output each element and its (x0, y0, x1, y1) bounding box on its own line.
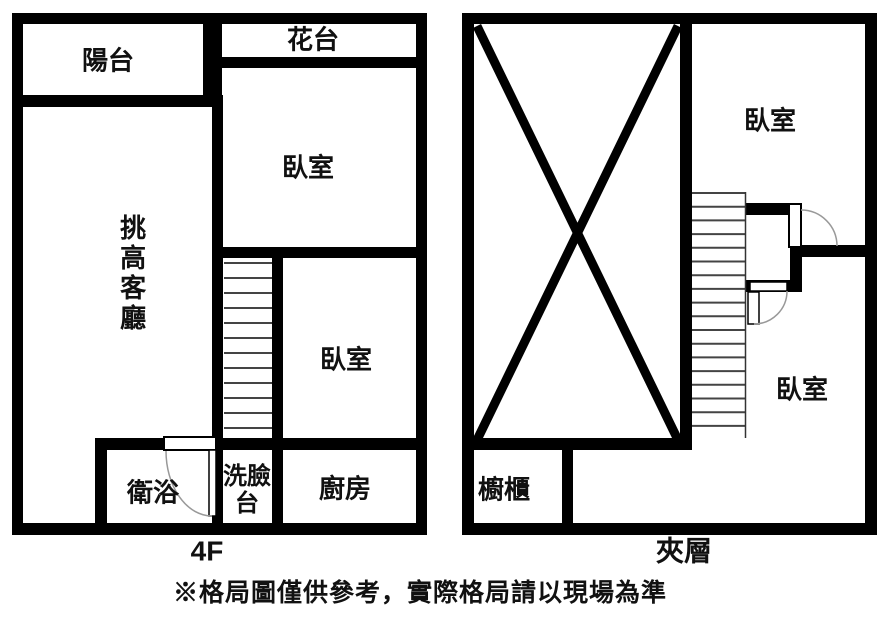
room-label-bedroom-top-mezzanine: 臥室 (744, 107, 796, 134)
room-label-cabinet: 櫥櫃 (478, 476, 530, 503)
stairs-mezzanine (692, 192, 746, 438)
bathroom-door-leaf-closed (164, 437, 216, 450)
stairs-4f (224, 263, 272, 428)
floor-label-mezzanine: 夾層 (656, 536, 712, 565)
mezzanine-bedroom-top-door (789, 204, 837, 247)
room-label-balcony: 陽台 (82, 47, 134, 74)
room-label-bathroom: 衛浴 (127, 479, 179, 506)
room-label-living-room: 挑高客廳 (117, 214, 144, 334)
mezzanine-bedroom-bottom-door (748, 282, 787, 324)
floor-label-4f: 4F (191, 536, 224, 565)
disclaimer-text: ※格局圖僅供參考，實際格局請以現場為準 (173, 580, 667, 606)
floorplan-4f-walls (12, 13, 427, 535)
void-x-mark (477, 26, 678, 440)
bathroom-door-leaf-open (209, 450, 216, 516)
room-label-bedroom-top-4f: 臥室 (282, 154, 334, 181)
floorplan-mezzanine-walls (462, 13, 877, 535)
floor-plan-image: 陽台 花台 臥室 挑高客廳 臥室 衛浴 洗臉台 廚房 4F 臥室 臥室 櫥櫃 夾… (0, 0, 889, 622)
mezzanine-bottom-door-leaf-open (748, 292, 759, 324)
mezzanine-top-door-leaf (789, 204, 801, 247)
room-label-kitchen: 廚房 (319, 475, 371, 502)
mezzanine-bottom-door-leaf-closed (750, 282, 787, 291)
room-label-bedroom-mid-4f: 臥室 (320, 346, 372, 373)
room-label-bedroom-bottom-mezzanine: 臥室 (776, 376, 828, 403)
mezzanine-top-door-swing-arc (801, 210, 837, 246)
room-label-washbasin: 洗臉台 (219, 463, 275, 517)
room-label-flower-bed: 花台 (287, 26, 339, 53)
